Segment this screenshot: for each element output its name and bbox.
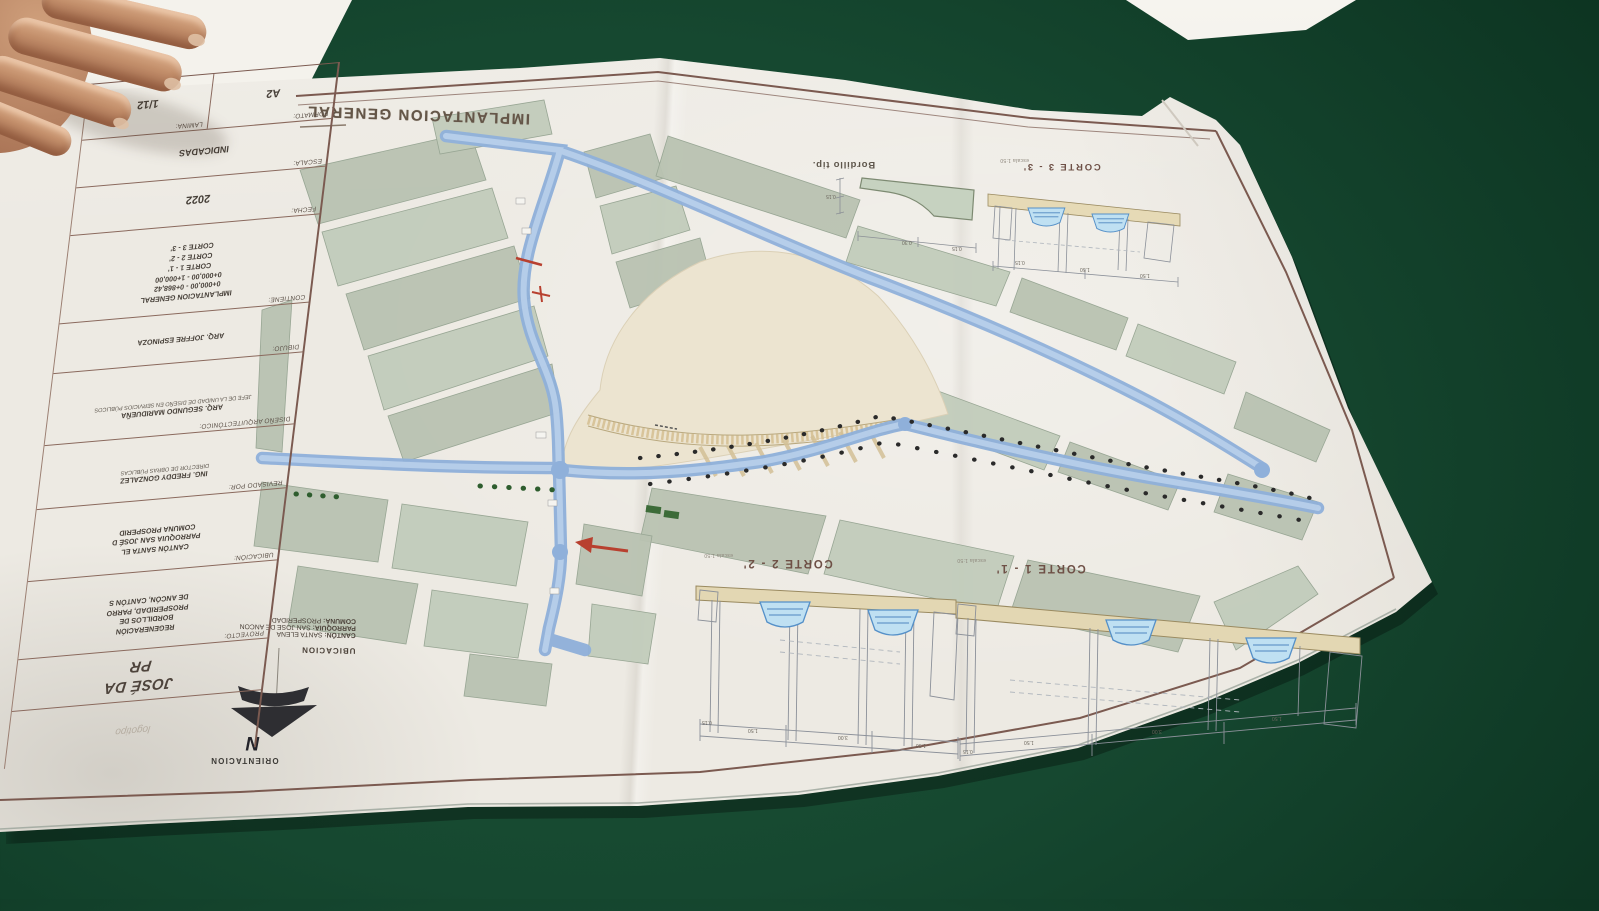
north-label: ORIENTACION	[210, 756, 279, 765]
dim-label: 0.15	[702, 718, 712, 724]
corte-3-3-scale: escala 1:50	[1000, 156, 1029, 162]
dim-label: 0.30	[902, 238, 912, 244]
dim-label: 1.50	[1140, 271, 1150, 277]
corte-1-1-scale: escala 1:50	[957, 556, 986, 562]
corte-2-2-drawing	[696, 586, 958, 759]
hand	[0, 0, 320, 220]
contiene-label: CONTIENE:	[268, 293, 306, 303]
dibujo-value: ARQ. JOFFRE ESPINOZA	[59, 323, 303, 354]
corte-1-1-drawing	[956, 602, 1362, 761]
corte-1-1-label: CORTE 1 - 1'	[995, 561, 1086, 574]
dim-label: 0.15	[826, 192, 836, 198]
dim-label: 1.50	[748, 726, 758, 732]
dim-label: 1.50	[1080, 265, 1090, 271]
dim-label: 0.15	[963, 747, 973, 753]
corner-crease	[1162, 100, 1198, 146]
dim-label: 1.50	[1024, 738, 1034, 744]
ubicacion-comuna-label: COMUNA:	[323, 617, 356, 625]
corte-2-2-scale: escala 1:50	[704, 551, 733, 557]
ubicacion-comuna-value: PROSPERIDAD	[272, 616, 322, 624]
curb-detail-label: Bordillo tip.	[812, 158, 875, 169]
ubicacion-canton-label: CANTÓN:	[324, 631, 355, 639]
proyecto-label: PROYECTO:	[224, 629, 265, 640]
logo-placeholder: logotipo	[8, 713, 258, 746]
dim-label: 1.50	[1272, 714, 1282, 720]
corte-2-2-label: CORTE 2 - 2'	[742, 556, 833, 569]
dim-label: 3.00	[1152, 727, 1162, 733]
dim-label: 3.00	[838, 733, 848, 739]
corte-3-3-label: CORTE 3 - 3'	[1022, 160, 1101, 171]
dibujo-label: DIBUJO:	[272, 343, 300, 352]
tb-ubicacion-label: UBICACIÓN:	[233, 551, 274, 562]
corte-3-3-drawing	[988, 194, 1180, 287]
ubicacion-canton-value: SANTA ELENA	[276, 630, 322, 638]
ubicacion-parroquia-label: PARROQUIA:	[313, 624, 356, 632]
planters	[296, 486, 556, 497]
dim-label: 1.50	[916, 741, 926, 747]
dim-label: 0.15	[1015, 258, 1025, 264]
dim-label: 0.15	[952, 244, 962, 250]
